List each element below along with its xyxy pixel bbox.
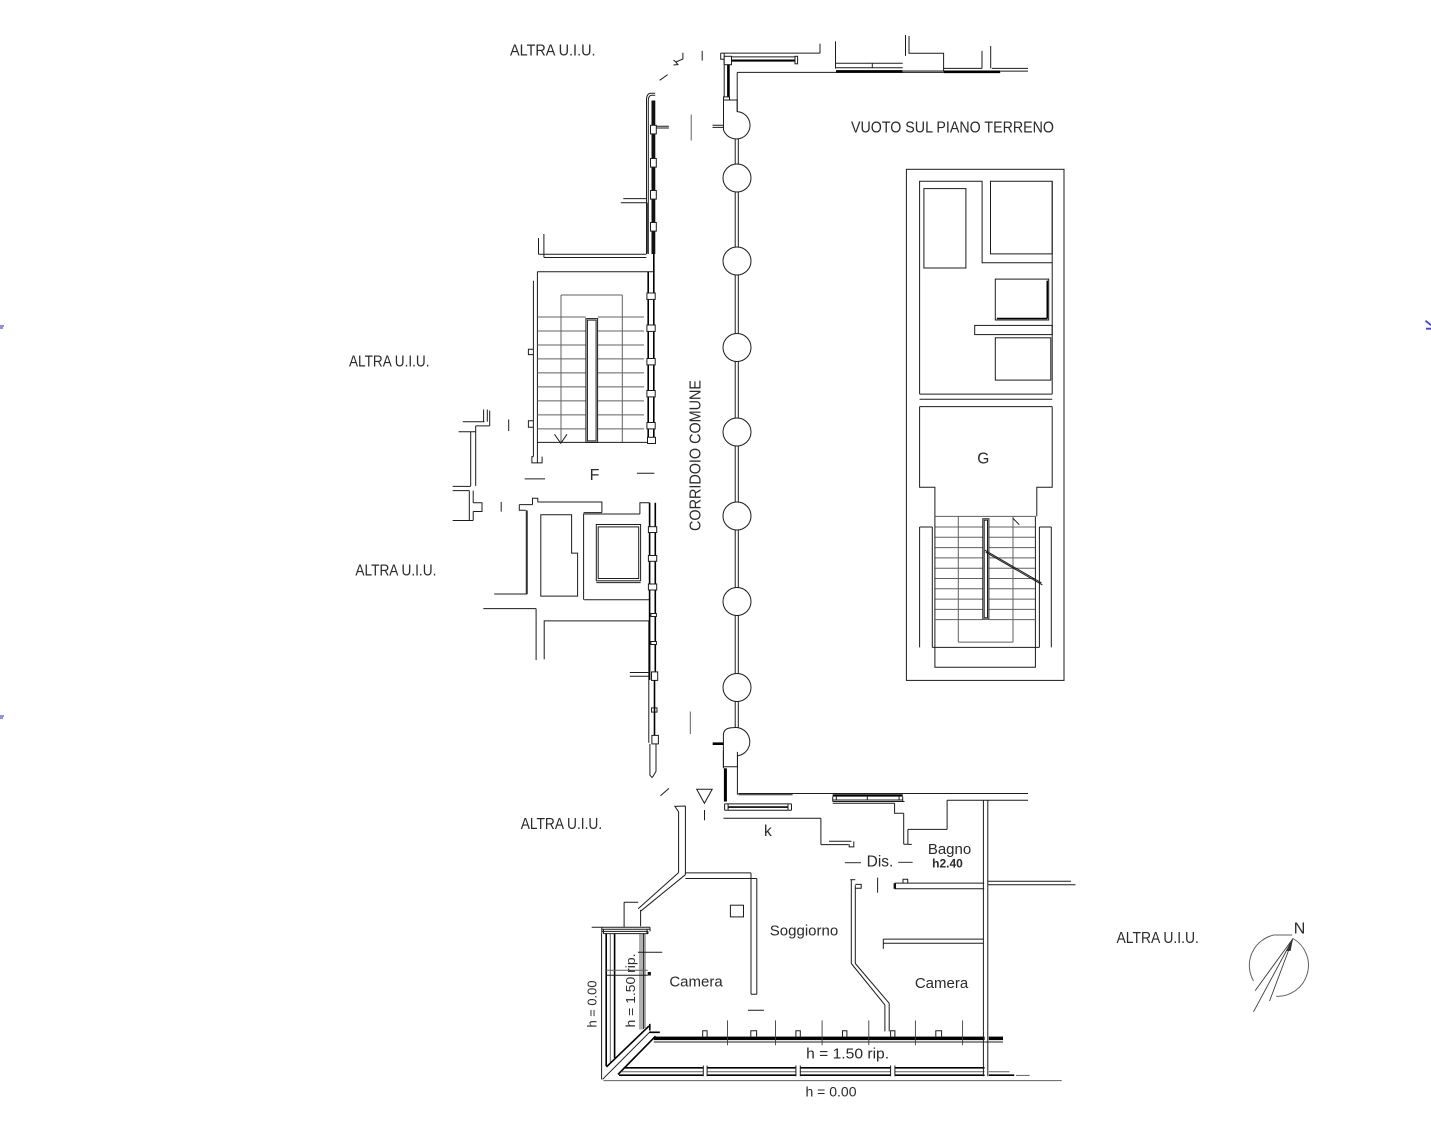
- svg-text:h = 0.00: h = 0.00: [806, 1084, 857, 1100]
- svg-text:Camera: Camera: [669, 974, 723, 991]
- svg-text:ALTRA U.I.U.: ALTRA U.I.U.: [510, 43, 596, 60]
- svg-text:Soggiorno: Soggiorno: [770, 923, 838, 940]
- svg-text:VUOTO SUL PIANO TERRENO: VUOTO SUL PIANO TERRENO: [851, 120, 1054, 137]
- svg-text:CORRIDOIO COMUNE: CORRIDOIO COMUNE: [688, 380, 705, 531]
- svg-text:Camera: Camera: [915, 975, 969, 992]
- svg-text:ALTRA U.I.U.: ALTRA U.I.U.: [349, 354, 430, 371]
- svg-text:ALTRA U.I.U.: ALTRA U.I.U.: [1117, 930, 1199, 947]
- svg-text:ALTRA U.I.U.: ALTRA U.I.U.: [521, 816, 603, 833]
- svg-text:h = 1.50 rip.: h = 1.50 rip.: [623, 954, 638, 1028]
- svg-text:h2.40: h2.40: [932, 856, 963, 870]
- svg-text:Dis.: Dis.: [867, 854, 894, 871]
- svg-text:h = 1.50 rip.: h = 1.50 rip.: [806, 1046, 889, 1063]
- svg-text:F: F: [590, 467, 600, 484]
- svg-text:G: G: [977, 451, 989, 468]
- svg-text:ALTRA U.I.U.: ALTRA U.I.U.: [355, 563, 436, 580]
- svg-text:N: N: [1294, 920, 1306, 937]
- svg-text:k: k: [764, 823, 772, 840]
- svg-text:h = 0.00: h = 0.00: [585, 981, 600, 1028]
